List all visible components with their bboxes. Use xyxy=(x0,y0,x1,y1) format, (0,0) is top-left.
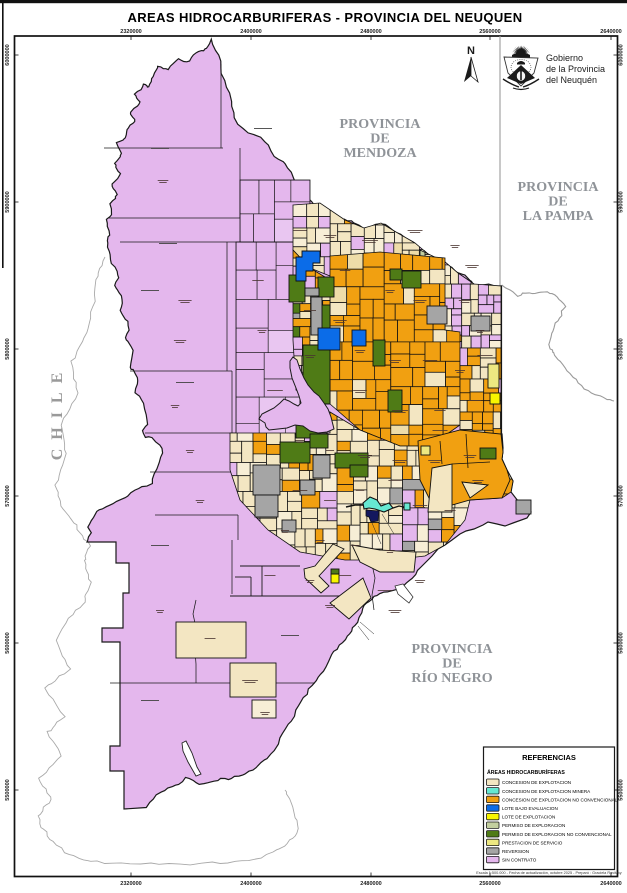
svg-text:Escala 1:500.000 - Fecha de ac: Escala 1:500.000 - Fecha de actualizació… xyxy=(476,871,622,875)
svg-text:REFERENCIAS: REFERENCIAS xyxy=(522,753,576,762)
svg-text:5900000: 5900000 xyxy=(619,191,625,212)
svg-text:PROVINCIA: PROVINCIA xyxy=(518,180,600,195)
svg-text:SIN CONTRATO: SIN CONTRATO xyxy=(502,858,537,863)
svg-text:del Neuquén: del Neuquén xyxy=(546,75,597,85)
svg-text:LOTE BAJO EVALUACION: LOTE BAJO EVALUACION xyxy=(502,806,558,811)
svg-text:5700000: 5700000 xyxy=(619,485,625,506)
svg-text:CONCESION DE EXPLOTACION MINER: CONCESION DE EXPLOTACION MINERA xyxy=(502,789,591,794)
svg-text:5500000: 5500000 xyxy=(619,779,625,800)
svg-text:AREAS HIDROCARBURIFERAS - PROV: AREAS HIDROCARBURIFERAS - PROVINCIA DEL … xyxy=(127,10,522,25)
svg-text:CONCESION DE EXPLOTACION NO CO: CONCESION DE EXPLOTACION NO CONVENCIONAL xyxy=(502,797,618,802)
svg-text:DE: DE xyxy=(548,195,567,210)
svg-text:5600000: 5600000 xyxy=(5,632,11,653)
svg-text:REVERSION: REVERSION xyxy=(502,849,529,854)
svg-text:PROVINCIA: PROVINCIA xyxy=(412,642,494,657)
svg-text:N: N xyxy=(467,45,475,57)
svg-text:DE: DE xyxy=(370,132,389,147)
svg-text:5800000: 5800000 xyxy=(5,338,11,359)
svg-text:Gobierno: Gobierno xyxy=(546,53,583,63)
svg-text:5500000: 5500000 xyxy=(5,779,11,800)
svg-text:2640000: 2640000 xyxy=(600,29,621,35)
svg-text:2560000: 2560000 xyxy=(479,29,500,35)
svg-text:MENDOZA: MENDOZA xyxy=(343,146,417,161)
svg-text:PRESTACION DE SERVICIO: PRESTACION DE SERVICIO xyxy=(502,840,563,845)
svg-text:2400000: 2400000 xyxy=(240,881,261,887)
svg-text:LA PAMPA: LA PAMPA xyxy=(523,209,595,224)
svg-text:2640000: 2640000 xyxy=(600,881,621,887)
svg-text:CHILE: CHILE xyxy=(49,364,66,461)
svg-text:PROVINCIA: PROVINCIA xyxy=(340,117,422,132)
svg-text:ÁREAS HIDROCARBURÍFERAS: ÁREAS HIDROCARBURÍFERAS xyxy=(487,768,565,776)
svg-text:DE: DE xyxy=(442,657,461,672)
svg-text:CONCESION DE EXPLOTACION: CONCESION DE EXPLOTACION xyxy=(502,780,571,785)
svg-text:2320000: 2320000 xyxy=(120,29,141,35)
svg-text:PERMISO DE EXPLORACION NO CONV: PERMISO DE EXPLORACION NO CONVENCIONAL xyxy=(502,832,612,837)
svg-text:5700000: 5700000 xyxy=(5,485,11,506)
svg-text:2480000: 2480000 xyxy=(360,881,381,887)
svg-text:6000000: 6000000 xyxy=(5,44,11,65)
svg-text:5800000: 5800000 xyxy=(619,338,625,359)
svg-text:2320000: 2320000 xyxy=(120,881,141,887)
svg-text:2400000: 2400000 xyxy=(240,29,261,35)
svg-text:5900000: 5900000 xyxy=(5,191,11,212)
svg-text:PERMISO DE EXPLORACION: PERMISO DE EXPLORACION xyxy=(502,823,565,828)
svg-text:5600000: 5600000 xyxy=(619,632,625,653)
svg-text:2560000: 2560000 xyxy=(479,881,500,887)
svg-text:de la Provincia: de la Provincia xyxy=(546,64,605,74)
svg-text:6000000: 6000000 xyxy=(619,44,625,65)
svg-text:2480000: 2480000 xyxy=(360,29,381,35)
svg-text:LOTE DE EXPLOTACION: LOTE DE EXPLOTACION xyxy=(502,815,555,820)
svg-text:RÍO NEGRO: RÍO NEGRO xyxy=(411,669,492,686)
